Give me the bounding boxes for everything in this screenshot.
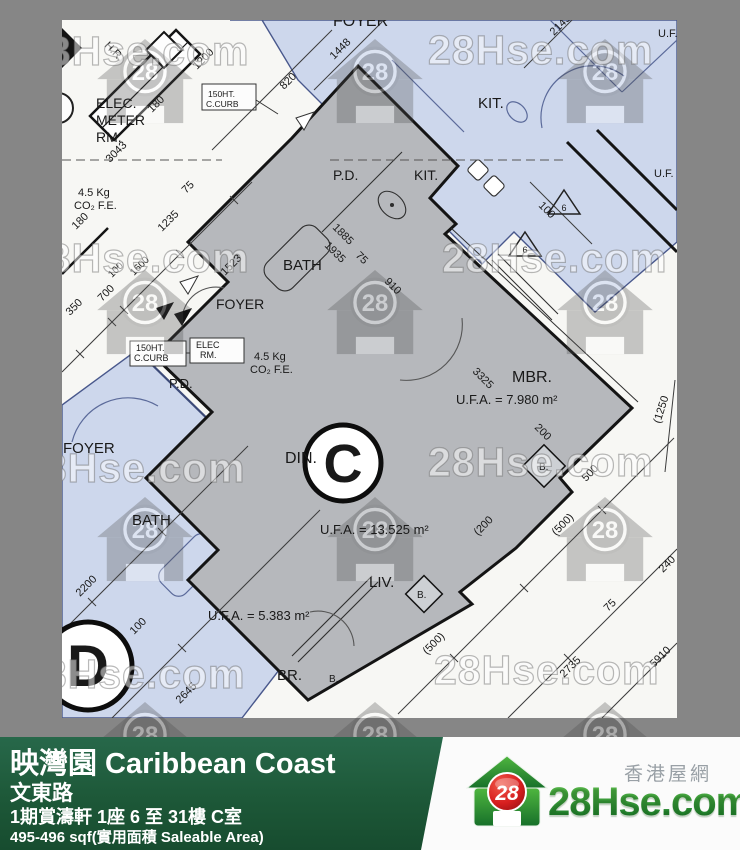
plan-label: FOYER <box>216 296 264 312</box>
plan-label: ELEC. <box>96 95 136 111</box>
watermark-house-icon <box>557 702 653 737</box>
logo-name: 28Hse.com <box>548 780 740 825</box>
plan-label: CO₂ F.E. <box>250 364 293 376</box>
plan-label: KIT. <box>478 95 504 112</box>
plan-label: BATH <box>283 257 322 274</box>
plan-label: B. <box>417 590 426 601</box>
plan-label: 150HT. <box>208 89 235 99</box>
plan-label: 150HT. <box>136 343 165 353</box>
plan-label: U.F. <box>658 28 677 40</box>
plan-label: 4.5 Kg <box>254 351 286 363</box>
plan-label: U.F.A. = 13.525 m² <box>320 522 429 537</box>
plan-label: C.CURB <box>206 99 239 109</box>
logo-house-icon: 28 <box>466 755 548 829</box>
info-bar: 28 28Hse.com 香港屋網 映灣園 Caribbean Coast 文東… <box>0 737 740 850</box>
watermark-text: 28Hse.com <box>428 439 654 485</box>
estate-saleable-area: 495-496 sqf(實用面積 Saleable Area) <box>10 826 264 847</box>
watermark-text: 28Hse.com <box>434 647 660 693</box>
plan-label: 6 <box>561 203 566 213</box>
plan-label: KIT. <box>414 167 438 183</box>
plan-label: U.F.A. = 7.980 m² <box>456 392 558 407</box>
plan-label: P.D. <box>333 167 358 183</box>
plan-label: DIN. <box>285 450 317 467</box>
plan-label: FOYER <box>333 20 388 30</box>
watermark-strip <box>0 690 740 737</box>
site-logo: 28 28Hse.com 香港屋網 <box>466 755 736 845</box>
plan-label: BR. <box>277 667 302 684</box>
watermark-text: 28Hse.com <box>62 28 250 74</box>
plan-label: RM. <box>200 350 217 360</box>
plan-label: MBR. <box>512 369 552 386</box>
plan-label: 4.5 Kg <box>78 187 110 199</box>
plan-label: U.F.A. = 5.383 m² <box>208 608 310 623</box>
plan-label: C.CURB <box>134 353 169 363</box>
floor-plan-drawing: 28 <box>62 20 677 718</box>
watermark-house-icon <box>327 702 423 737</box>
plan-label: B. <box>329 674 338 685</box>
watermark-text: 28Hse.com <box>62 445 246 491</box>
plan-label: C <box>324 434 363 494</box>
watermark-house-icon <box>97 702 193 737</box>
plan-label: U.F. <box>654 168 674 180</box>
watermark-text: 28Hse.com <box>62 235 250 281</box>
plan-label: CO₂ F.E. <box>74 200 117 212</box>
watermark-text: 28Hse.com <box>442 235 668 281</box>
floorplan-image: 28 <box>62 20 677 718</box>
watermark-text: 28Hse.com <box>428 27 654 73</box>
plan-label: LIV. <box>369 574 394 591</box>
floorplan-page: 28 <box>0 0 740 850</box>
plan-label: P.D. <box>169 376 193 391</box>
logo-tagline: 香港屋網 <box>624 759 712 786</box>
plan-label: ELEC <box>196 340 220 350</box>
estate-title: 映灣園 Caribbean Coast <box>10 740 336 782</box>
plan-label: METER <box>96 112 145 128</box>
plan-label: BATH <box>132 512 171 529</box>
logo-badge-number: 28 <box>494 782 519 805</box>
